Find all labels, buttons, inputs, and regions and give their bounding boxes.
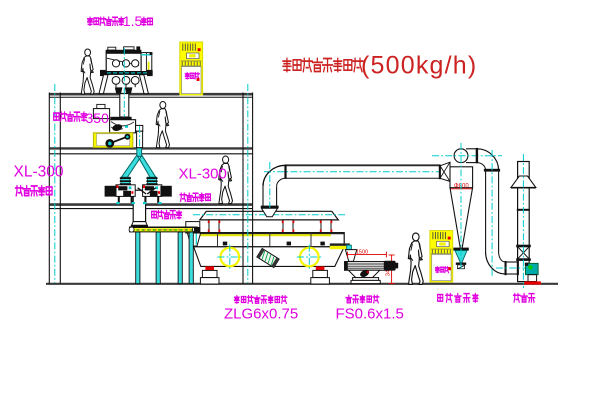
svg-text:FS0.6x1.5: FS0.6x1.5 xyxy=(336,306,404,323)
svg-text:1500: 1500 xyxy=(356,250,368,256)
svg-text:350: 350 xyxy=(86,110,110,126)
svg-text:(500kg/h): (500kg/h) xyxy=(361,52,477,80)
svg-text:1.5: 1.5 xyxy=(123,13,143,29)
svg-text:XL-300: XL-300 xyxy=(179,166,227,183)
svg-text:Φ800: Φ800 xyxy=(454,184,469,190)
svg-text:XL-300: XL-300 xyxy=(14,164,64,181)
svg-text:ZLG6x0.75: ZLG6x0.75 xyxy=(224,306,298,323)
